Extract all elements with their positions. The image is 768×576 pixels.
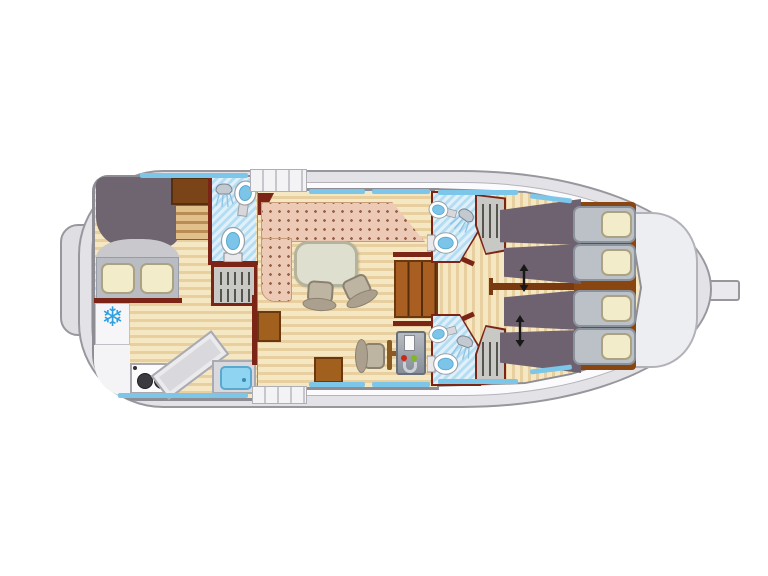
window-band <box>372 382 430 387</box>
bow-cabin-partition-cap <box>489 278 493 295</box>
stairs <box>394 260 438 318</box>
snowflake-icon: ❄ <box>101 302 124 333</box>
cabinet-saloon-bottom <box>314 357 343 383</box>
hanging-clothes <box>482 204 500 238</box>
bow-cabin-partition <box>491 283 587 290</box>
bathroom-wall <box>208 177 212 265</box>
bed-head <box>573 244 636 281</box>
deck-steps-bottom <box>252 386 307 404</box>
sofa-left <box>261 238 292 302</box>
indicator-red <box>401 355 407 361</box>
deck-steps-top <box>250 169 307 192</box>
hanging-clothes <box>482 342 500 376</box>
double-arrow-icon <box>513 315 527 347</box>
galley-sink-unit <box>212 360 256 394</box>
galley-sink <box>220 366 252 390</box>
cabinet-saloon-left <box>257 311 281 342</box>
double-bed-blanket <box>96 177 179 247</box>
toilet-icon <box>427 230 459 256</box>
indicator-green <box>411 355 417 361</box>
pillow <box>601 295 632 322</box>
console-display <box>404 335 415 351</box>
galley-counter-corner <box>94 345 130 397</box>
toilet-icon <box>219 226 247 262</box>
window-band <box>140 173 248 178</box>
pillow <box>601 333 632 360</box>
stove-knob <box>133 366 137 370</box>
pillow <box>601 249 632 276</box>
drawers-aft <box>175 205 210 240</box>
double-arrow-icon <box>517 264 531 292</box>
window-band <box>309 382 365 387</box>
window-band <box>372 189 430 194</box>
hanging-clothes <box>220 289 250 302</box>
window-band <box>309 189 365 194</box>
window-band <box>438 379 518 384</box>
window-band <box>118 393 248 398</box>
faucet <box>242 378 246 382</box>
bed-head <box>573 328 636 365</box>
wardrobe-aft <box>171 177 210 205</box>
bed-head <box>573 290 636 327</box>
dining-chair <box>302 280 338 314</box>
hanging-clothes <box>220 272 250 285</box>
helm-seat <box>353 339 385 373</box>
window-band <box>438 190 518 195</box>
pillow <box>601 211 632 238</box>
fridge: ❄ <box>95 303 130 345</box>
pillow <box>140 263 174 294</box>
closet-aft <box>211 264 257 306</box>
pillow <box>101 263 135 294</box>
boat-floor-plan: ❄ <box>0 0 768 576</box>
bed-head <box>573 206 636 243</box>
